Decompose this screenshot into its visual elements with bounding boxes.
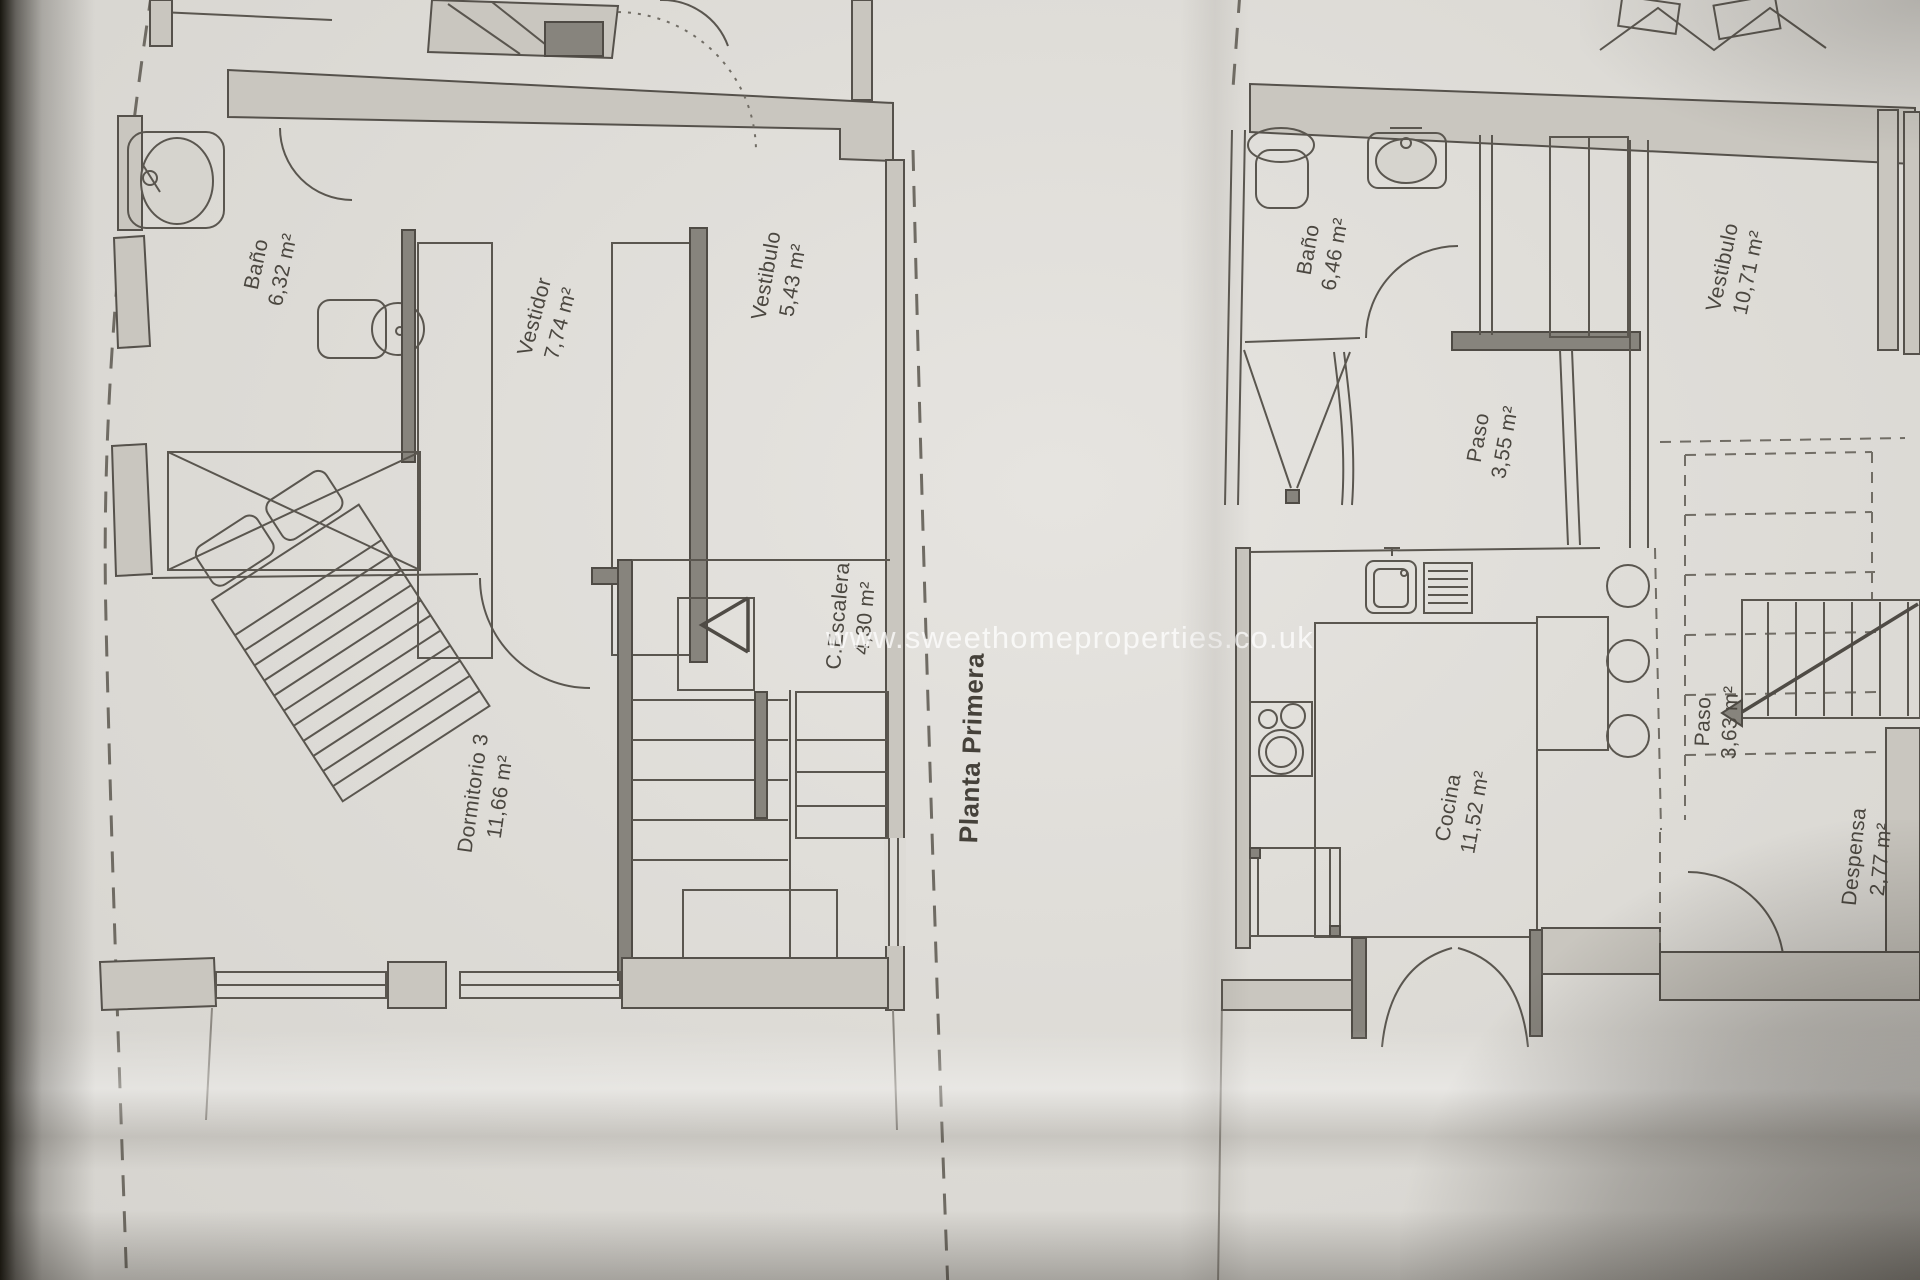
photo-shadow-left [0,0,95,1280]
room-label-escalera: C.Escalera 4,30 m² [820,561,884,673]
left-x-closet [168,452,420,570]
left-right-wall [884,160,906,1010]
stools [1607,565,1649,757]
bed-cutoff [428,0,618,58]
hob [1250,702,1312,776]
left-left-wall-strips [100,116,216,1010]
floor-plan-photo: Baño 6,32 m² Vestidor 7,74 m² Vestibulo … [0,0,1920,1280]
appliance [1250,848,1340,936]
paper-crease-vertical [1180,0,1250,1280]
stair-arrow [702,598,748,652]
solid-stair-flight [1722,600,1920,726]
paso-funnel [1244,350,1580,545]
left-top-wall [228,70,893,161]
door-arc-bedroom [480,578,590,688]
door-arc-bathroom [280,128,352,200]
wall-vestidor-vestibulo [690,228,707,662]
dormitorio3-room [152,461,632,801]
wall-bath-vestidor [402,230,415,462]
toilet [318,300,386,358]
door-arc-dotted [618,12,756,150]
door-arc-bathroom-right [1366,246,1458,338]
room-label-paso-lower: Paso 3,63 m² [1688,684,1745,759]
photo-shadow-top-right [1580,0,1920,150]
room-area: 3,63 m² [1716,685,1746,759]
right-bathroom [1245,128,1648,548]
photo-shadow-bottom [0,1210,1920,1280]
plan-title: Planta Primera [953,652,991,843]
door-arc-cutoff [660,0,728,46]
room-name: Paso [1688,684,1718,758]
bed [184,461,490,801]
